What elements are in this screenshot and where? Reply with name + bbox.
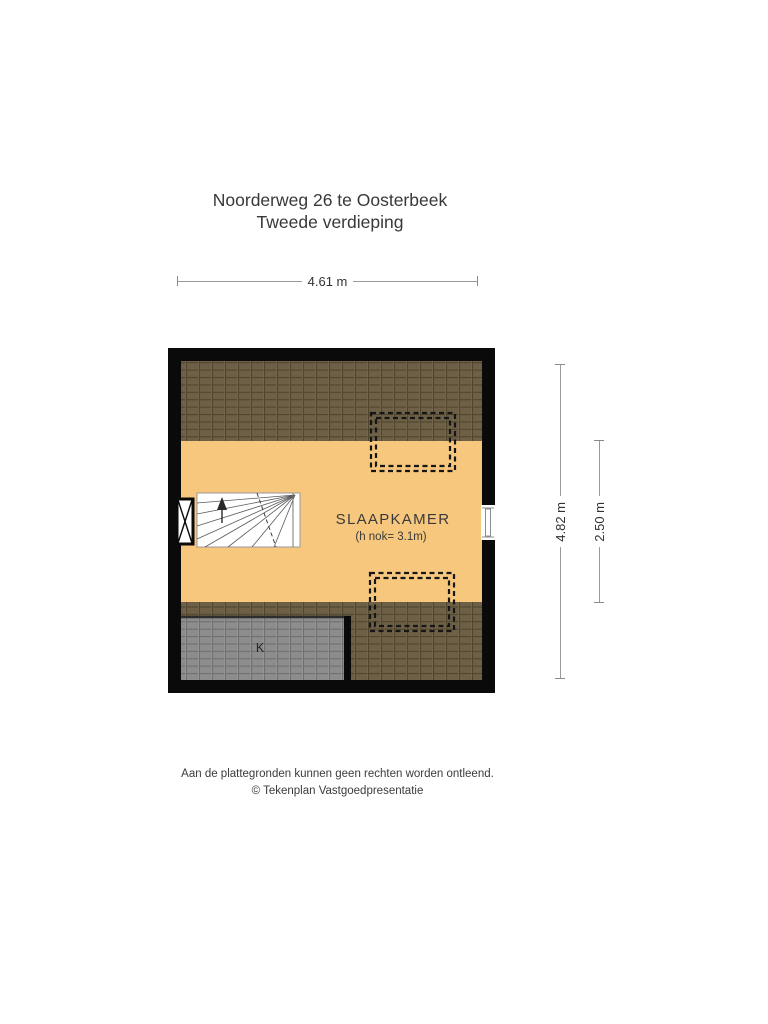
bedroom-ridge-height-label: (h nok= 3.1m) <box>355 531 426 543</box>
dimension-line <box>560 547 561 678</box>
roof-slope-top <box>181 361 482 441</box>
shaft-symbol <box>177 499 193 544</box>
title-block: Noorderweg 26 te Oosterbeek Tweede verdi… <box>140 189 520 233</box>
bedroom-label: SLAAPKAMER <box>336 511 451 528</box>
dimension-right-height-label: 4.82 m <box>553 496 568 548</box>
disclaimer-text: Aan de plattegronden kunnen geen rechten… <box>140 766 535 783</box>
plan-title: Noorderweg 26 te Oosterbeek <box>140 189 520 211</box>
dimension-top-width: 4.61 m <box>177 274 478 288</box>
dimension-line <box>599 547 600 602</box>
dimension-tick <box>477 276 478 286</box>
dimension-right-inner-height: 2.50 m <box>592 440 606 603</box>
floor-plan-drawing: K <box>160 340 510 700</box>
closet-area: K <box>181 616 351 680</box>
dimension-line <box>178 281 302 282</box>
copyright-text: © Tekenplan Vastgoedpresentatie <box>140 783 535 800</box>
dimension-tick <box>594 602 604 603</box>
window-right <box>481 505 495 540</box>
staircase <box>197 493 300 547</box>
closet-label: K <box>256 641 265 655</box>
dimension-tick <box>555 678 565 679</box>
dimension-line <box>599 441 600 496</box>
dimension-top-width-label: 4.61 m <box>302 274 354 289</box>
footer-block: Aan de plattegronden kunnen geen rechten… <box>140 766 535 800</box>
dimension-right-height: 4.82 m <box>553 364 567 679</box>
floorplan-page: Noorderweg 26 te Oosterbeek Tweede verdi… <box>0 0 768 1024</box>
dimension-right-inner-height-label: 2.50 m <box>592 496 607 548</box>
dimension-line <box>560 365 561 496</box>
dimension-line <box>353 281 477 282</box>
plan-floor-subtitle: Tweede verdieping <box>140 211 520 233</box>
